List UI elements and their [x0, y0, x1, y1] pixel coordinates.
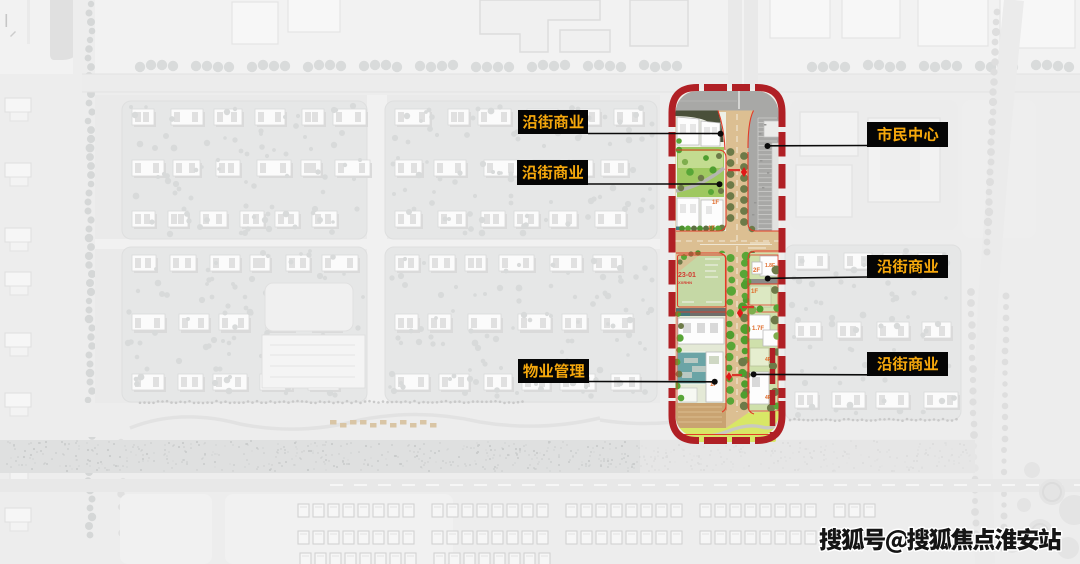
- svg-text:2F: 2F: [753, 268, 760, 274]
- svg-text:1F: 1F: [751, 289, 758, 295]
- svg-text:23-01: 23-01: [678, 272, 696, 279]
- svg-text:1F: 1F: [712, 200, 719, 206]
- svg-text:1F: 1F: [708, 226, 715, 232]
- svg-text:1.8F: 1.8F: [765, 263, 775, 269]
- svg-text:1.7F: 1.7F: [752, 326, 764, 332]
- svg-text:XXRHN: XXRHN: [678, 280, 692, 285]
